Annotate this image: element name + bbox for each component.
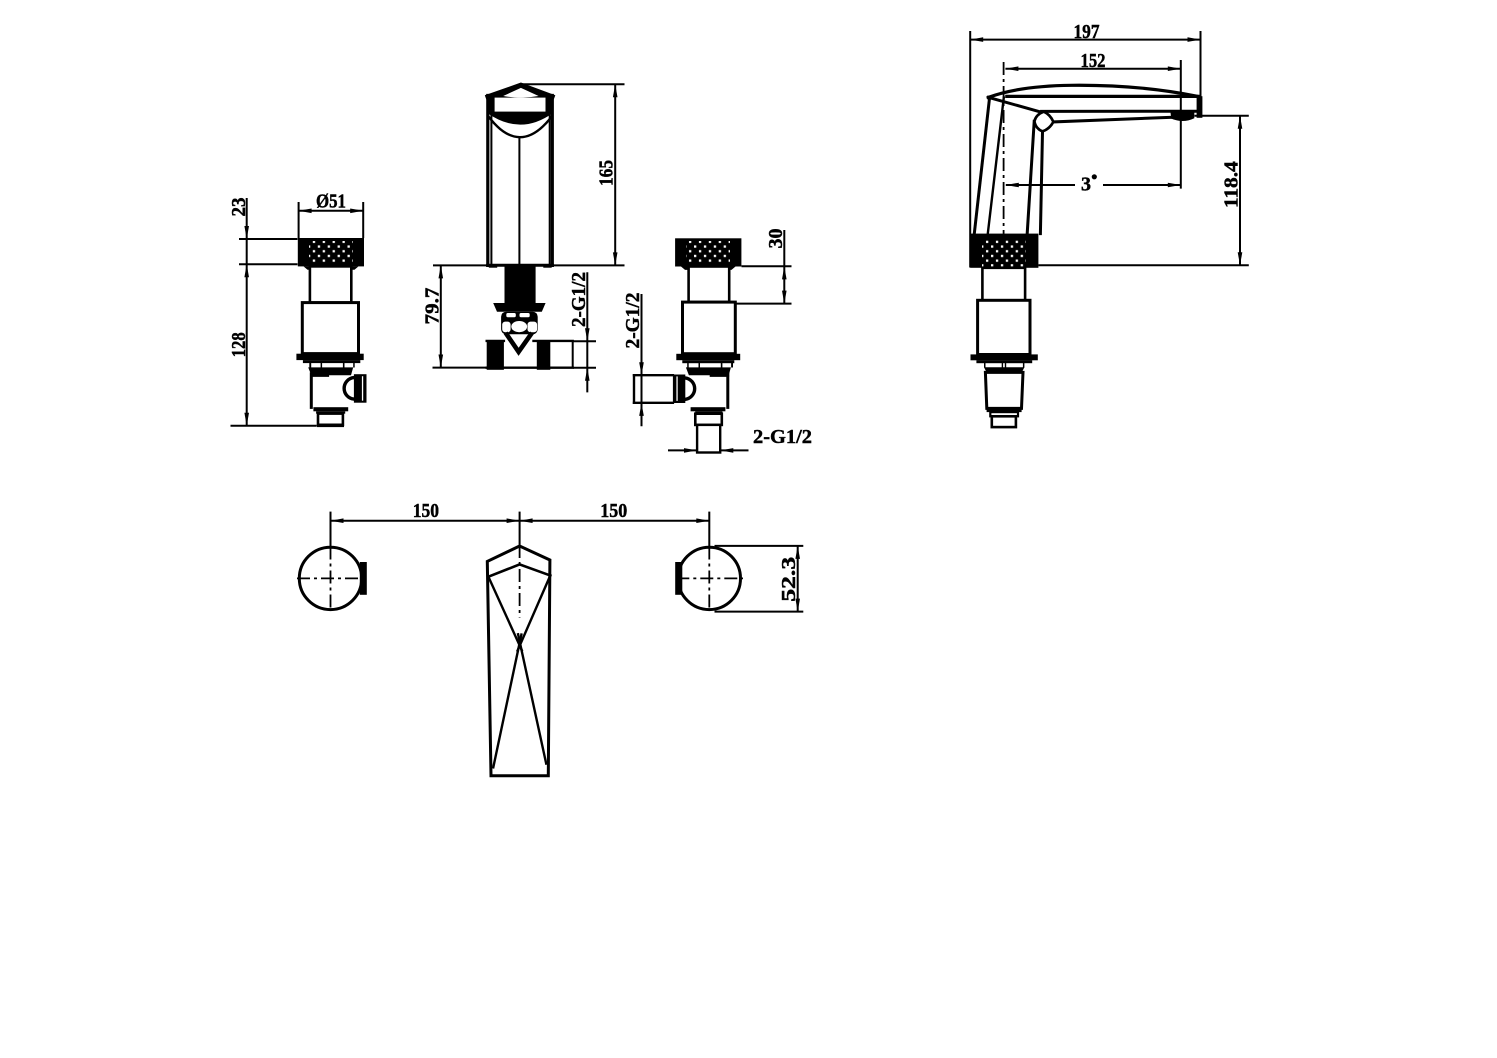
svg-text:165: 165 bbox=[596, 160, 618, 186]
svg-text:150: 150 bbox=[413, 500, 439, 522]
svg-text:152: 152 bbox=[1081, 50, 1106, 72]
svg-text:3: 3 bbox=[1081, 174, 1091, 196]
svg-text:Ø51: Ø51 bbox=[316, 191, 346, 213]
svg-text:150: 150 bbox=[600, 500, 627, 522]
svg-text:30: 30 bbox=[765, 229, 787, 249]
svg-text:52.3: 52.3 bbox=[778, 557, 800, 602]
svg-text:128: 128 bbox=[228, 332, 250, 357]
svg-text:2-G1/2: 2-G1/2 bbox=[568, 272, 590, 327]
svg-text:118.4: 118.4 bbox=[1221, 161, 1243, 208]
svg-text:197: 197 bbox=[1074, 21, 1100, 43]
svg-text:2-G1/2: 2-G1/2 bbox=[622, 293, 644, 349]
svg-text:2-G1/2: 2-G1/2 bbox=[753, 426, 812, 448]
svg-text:23: 23 bbox=[228, 198, 250, 217]
svg-text:79.7: 79.7 bbox=[421, 288, 443, 325]
